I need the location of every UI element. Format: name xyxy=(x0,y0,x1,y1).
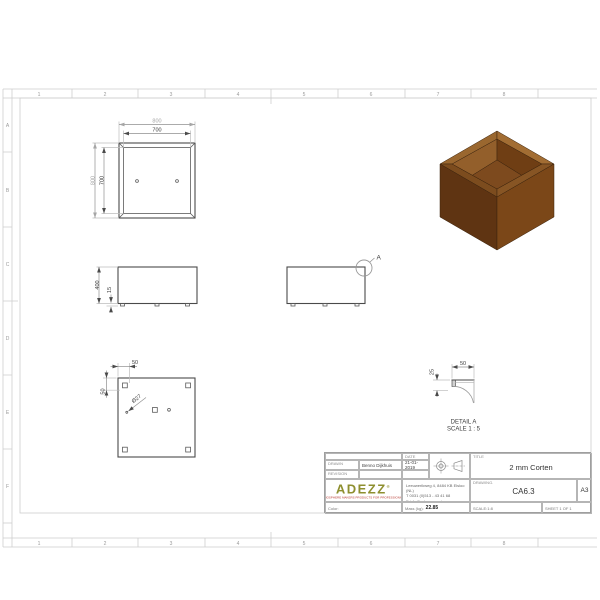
dim-height: 400 xyxy=(95,280,101,289)
date-label: DATE xyxy=(402,453,429,460)
dim-outer-height: 800 xyxy=(91,176,97,185)
scale-text: SCALE:1:8 xyxy=(470,502,542,514)
svg-text:A: A xyxy=(6,123,10,129)
dim-offset-left: 50 xyxy=(101,388,107,394)
logo-cell: ADEZZ® ATMOSPHERE MAKERS PRODUCTS FOR PR… xyxy=(325,479,402,502)
svg-text:8: 8 xyxy=(503,541,506,547)
detail-a-view: 50 25 DETAIL A SCALE 1 : 5 xyxy=(430,361,481,433)
center-foot xyxy=(153,408,158,413)
svg-text:7: 7 xyxy=(437,92,440,98)
detail-scale: SCALE 1 : 5 xyxy=(447,427,481,433)
mass-value: 22.85 xyxy=(426,505,439,511)
svg-text:2: 2 xyxy=(104,541,107,547)
svg-text:4: 4 xyxy=(237,541,240,547)
drawn-value: Benno Dijkhuis xyxy=(359,460,402,470)
drawing-sheet: 1 2 3 4 5 6 7 8 1 2 3 4 5 6 7 8 A B C D … xyxy=(0,0,600,600)
third-angle-projection-icon xyxy=(431,456,468,476)
foot xyxy=(186,304,190,307)
detail-dim-width: 50 xyxy=(460,361,466,367)
detail-title: DETAIL A xyxy=(451,420,477,426)
sheet-text: SHEET 1 OF 1 xyxy=(542,502,592,514)
svg-text:2: 2 xyxy=(104,92,107,98)
svg-text:8: 8 xyxy=(503,92,506,98)
drain-hole xyxy=(176,180,179,183)
isometric-view xyxy=(440,131,554,250)
projection-symbol-cell xyxy=(429,453,470,479)
svg-text:1: 1 xyxy=(38,541,41,547)
mass-cell: Mass (kg): 22.85 xyxy=(402,502,470,514)
corner-foot xyxy=(186,447,191,452)
svg-text:5: 5 xyxy=(303,541,306,547)
revision-label: REVISION xyxy=(325,470,359,479)
drain-hole xyxy=(136,180,139,183)
corner-foot xyxy=(123,383,128,388)
svg-text:6: 6 xyxy=(370,92,373,98)
logo-tagline: ATMOSPHERE MAKERS PRODUCTS FOR PROFESSIO… xyxy=(325,496,402,500)
zone-column-labels-top: 1 2 3 4 5 6 7 8 xyxy=(38,92,506,98)
drawing-number: CA6.3 xyxy=(471,485,576,498)
drawn-label: DRAWN xyxy=(325,460,359,470)
dim-inner-height: 700 xyxy=(100,176,106,185)
edge-fold-section xyxy=(452,380,456,387)
foot xyxy=(291,304,295,307)
corner-foot xyxy=(123,447,128,452)
svg-text:1: 1 xyxy=(38,92,41,98)
svg-text:D: D xyxy=(6,336,10,342)
svg-text:7: 7 xyxy=(437,541,440,547)
detail-dim-height: 25 xyxy=(430,369,436,375)
svg-text:4: 4 xyxy=(237,92,240,98)
cell-spacer xyxy=(402,470,429,479)
corner-foot xyxy=(186,383,191,388)
address-cell: Leeuwerikweg 4, 8484 KB Elsloo (NL) T 00… xyxy=(402,479,470,502)
detail-circle xyxy=(356,260,372,276)
color-label: Color: xyxy=(325,502,402,514)
registered-mark: ® xyxy=(387,484,391,489)
zone-column-labels-bottom: 1 2 3 4 5 6 7 8 xyxy=(38,541,506,547)
dim-outer-width: 800 xyxy=(152,119,161,125)
drain-hole xyxy=(168,408,171,411)
mass-label: Mass (kg): xyxy=(405,506,424,511)
foot xyxy=(121,304,125,307)
dim-hole-diameter: Ø27 xyxy=(131,394,143,405)
bottom-view: Ø27 50 50 xyxy=(101,360,196,457)
paper-size: A3 xyxy=(577,479,592,502)
title-block: DATE DRAWN Benno Dijkhuis 21-01-2019 REV… xyxy=(324,452,591,513)
dim-inner-width: 700 xyxy=(152,128,161,134)
cell-spacer xyxy=(325,453,402,460)
drawing-number-cell: Drawing. CA6.3 xyxy=(470,479,577,502)
svg-text:5: 5 xyxy=(303,92,306,98)
zone-row-labels-left: A B C D E F xyxy=(6,123,10,490)
foot xyxy=(155,304,159,307)
detail-marker-label: A xyxy=(377,255,382,262)
svg-text:C: C xyxy=(6,262,10,268)
svg-text:6: 6 xyxy=(370,541,373,547)
front-view: 400 15 xyxy=(95,267,197,311)
dim-offset-top: 50 xyxy=(132,360,138,366)
svg-text:B: B xyxy=(6,188,10,194)
foot xyxy=(323,304,327,307)
svg-text:E: E xyxy=(6,410,10,416)
drawing-title: 2 mm Corten xyxy=(471,459,591,475)
svg-text:3: 3 xyxy=(170,541,173,547)
adezz-logo: ADEZZ® xyxy=(336,481,391,495)
leader-hole xyxy=(126,411,128,413)
date-value: 21-01-2019 xyxy=(402,460,429,470)
revision-value xyxy=(359,470,402,479)
address-line-1: Leeuwerikweg 4, 8484 KB Elsloo (NL) xyxy=(406,483,469,493)
svg-text:3: 3 xyxy=(170,92,173,98)
dim-base: 15 xyxy=(107,287,113,293)
foot xyxy=(355,304,359,307)
svg-text:F: F xyxy=(6,484,9,490)
side-view: A xyxy=(287,255,382,307)
top-view: 800 700 800 700 xyxy=(91,119,196,219)
title-cell: TITLE 2 mm Corten xyxy=(470,453,592,479)
